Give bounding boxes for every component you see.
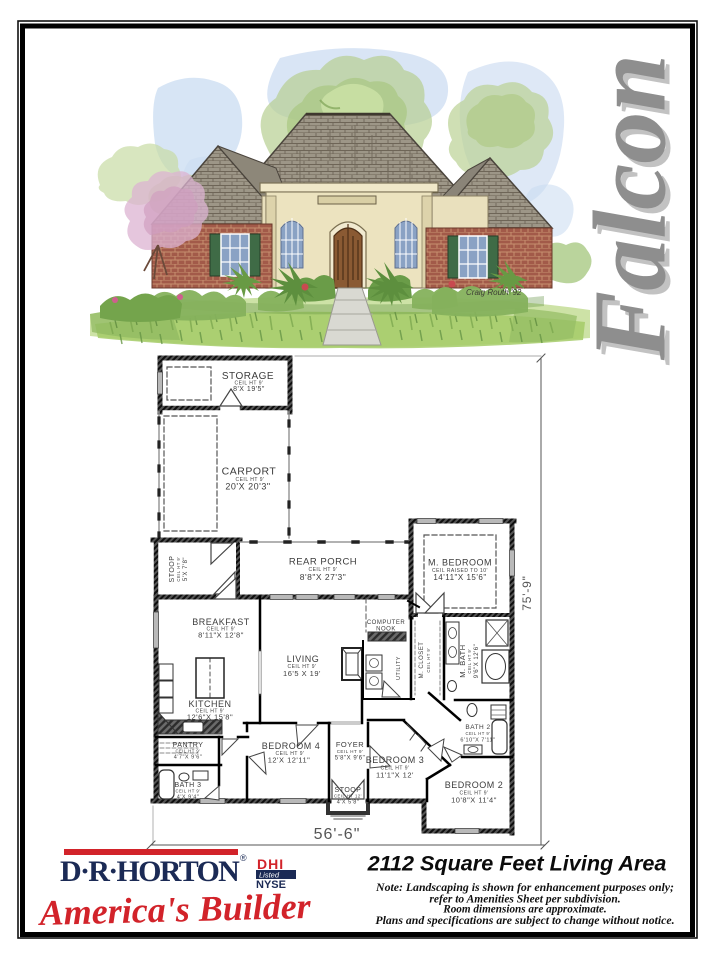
svg-text:REAR PORCH: REAR PORCH	[289, 557, 357, 568]
svg-text:9'6"X 12'6": 9'6"X 12'6"	[474, 644, 480, 678]
svg-text:COMPUTER: COMPUTER	[367, 620, 406, 626]
svg-text:4'X 9'4": 4'X 9'4"	[177, 795, 199, 801]
svg-text:12'6"X 15'8": 12'6"X 15'8"	[187, 713, 233, 722]
svg-text:BREAKFAST: BREAKFAST	[192, 617, 250, 627]
svg-text:12'X 12'11": 12'X 12'11"	[268, 756, 311, 765]
svg-text:Plans and specifications are: Plans and specifications are subject to …	[375, 913, 674, 927]
svg-text:Falcon: Falcon	[573, 54, 688, 361]
svg-text:8'X 19'5": 8'X 19'5"	[233, 386, 265, 393]
svg-text:8'11"X 12'8": 8'11"X 12'8"	[198, 631, 244, 640]
svg-text:14'11"X 15'6": 14'11"X 15'6"	[433, 573, 486, 582]
svg-text:2112 Square Feet Living Area: 2112 Square Feet Living Area	[367, 851, 667, 876]
svg-text:UTILITY: UTILITY	[396, 656, 402, 680]
svg-text:STOOP: STOOP	[169, 556, 176, 583]
svg-text:D·R·HORTON: D·R·HORTON	[60, 855, 240, 888]
svg-text:CEIL HT 12': CEIL HT 12'	[334, 794, 362, 799]
svg-text:5'X 7'8": 5'X 7'8"	[183, 557, 189, 581]
svg-text:16'5 X 19': 16'5 X 19'	[283, 669, 321, 678]
svg-text:NOOK: NOOK	[376, 627, 396, 633]
svg-text:4'7"X 9'6": 4'7"X 9'6"	[174, 755, 202, 761]
svg-text:20'X 20'3": 20'X 20'3"	[225, 482, 270, 492]
svg-text:Craig Routh '92: Craig Routh '92	[466, 288, 522, 297]
svg-text:4'X 5'8": 4'X 5'8"	[337, 800, 359, 806]
svg-text:CEIL HT 9': CEIL HT 9'	[175, 789, 200, 794]
svg-text:M. CLOSET: M. CLOSET	[419, 642, 425, 679]
svg-text:CEIL HT 9': CEIL HT 9'	[337, 749, 364, 754]
svg-text:11'1"X 12': 11'1"X 12'	[376, 771, 414, 780]
svg-text:CEIL HT 9': CEIL HT 9'	[467, 648, 472, 673]
svg-text:CEIL HT 9': CEIL HT 9'	[465, 731, 490, 736]
svg-text:BEDROOM 4: BEDROOM 4	[262, 741, 321, 751]
svg-text:M. BATH: M. BATH	[458, 644, 467, 677]
svg-text:®: ®	[240, 853, 247, 863]
svg-text:CARPORT: CARPORT	[222, 466, 277, 478]
svg-text:KITCHEN: KITCHEN	[188, 699, 231, 709]
svg-text:BEDROOM 2: BEDROOM 2	[445, 780, 504, 790]
svg-text:5'8"X 9'6": 5'8"X 9'6"	[335, 756, 366, 762]
svg-text:75'-9": 75'-9"	[520, 575, 534, 610]
svg-text:Note: Landscaping is shown for: Note: Landscaping is shown for enhanceme…	[375, 880, 674, 894]
svg-text:56'-6": 56'-6"	[314, 826, 361, 843]
svg-text:8'8"X 27'3": 8'8"X 27'3"	[300, 572, 346, 582]
svg-text:FOYER: FOYER	[336, 740, 364, 749]
svg-text:6'10"X 7'11": 6'10"X 7'11"	[460, 738, 495, 744]
svg-text:M. BEDROOM: M. BEDROOM	[428, 558, 492, 568]
svg-text:America's Builder: America's Builder	[37, 886, 312, 933]
svg-text:BEDROOM 3: BEDROOM 3	[366, 755, 425, 765]
svg-text:CEIL HT 9': CEIL HT 9'	[426, 647, 431, 672]
svg-text:LIVING: LIVING	[287, 654, 320, 664]
svg-text:CEIL HT 9': CEIL HT 9'	[176, 556, 181, 581]
svg-text:BATH 2: BATH 2	[465, 724, 490, 731]
svg-text:CEIL HT 9': CEIL HT 9'	[175, 749, 200, 754]
svg-text:10'8"X 11'4": 10'8"X 11'4"	[451, 796, 497, 805]
